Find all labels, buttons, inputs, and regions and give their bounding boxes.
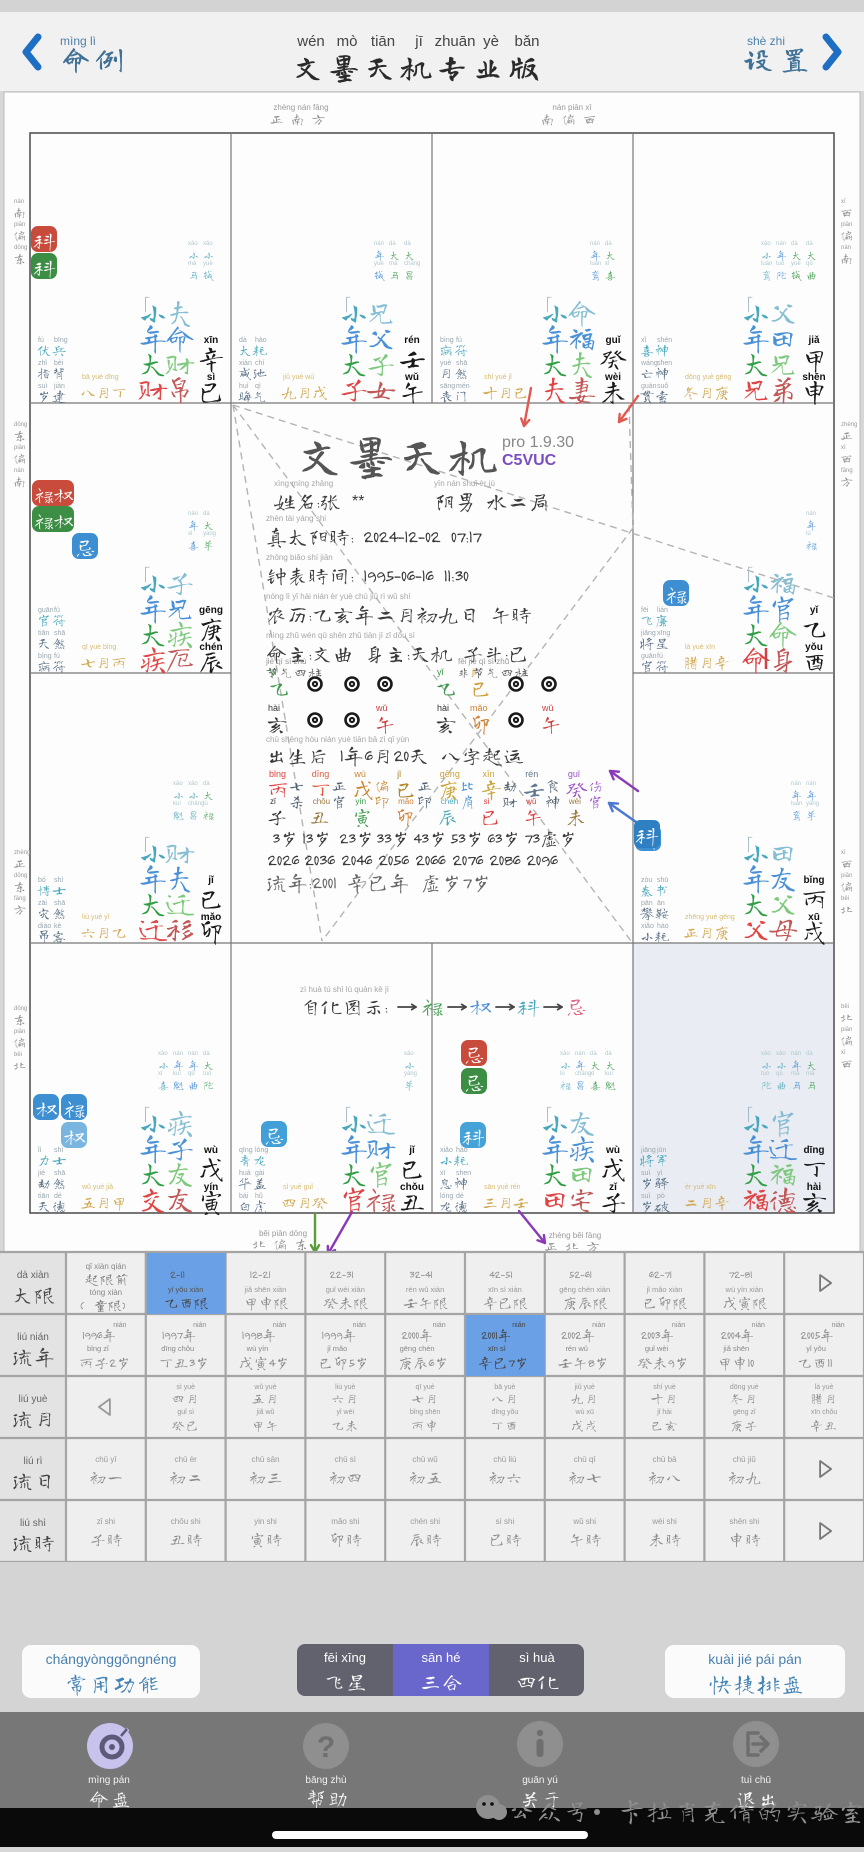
svg-text:shū: shū (657, 877, 668, 884)
svg-text:huì: huì (239, 383, 249, 390)
svg-text:yuè: yuè (440, 360, 451, 367)
svg-text:chū sì: chū sì (335, 1455, 356, 1464)
svg-text:shēn shi: shēn shi (729, 1517, 759, 1526)
svg-text:zì huà tú shì: zì huà tú shì lù quán kē jì (300, 985, 389, 994)
svg-text:dīng: dīng (803, 1145, 824, 1156)
svg-text:suì: suì (641, 1193, 650, 1200)
svg-text:qī yuè bǐng: qī yuè bǐng (82, 644, 116, 651)
svg-text:xǎo: xǎo (158, 1051, 168, 1057)
svg-text:sāng: sāng (440, 383, 455, 390)
svg-text:suì: suì (38, 383, 47, 390)
svg-text:tiān: tiān (371, 33, 395, 50)
svg-text:fú: fú (54, 607, 60, 614)
svg-text:kè: kè (54, 923, 62, 930)
svg-text:mǎ: mǎ (389, 261, 398, 267)
svg-text:sì yuè: sì yuè (176, 1384, 195, 1391)
svg-text:wǔ: wǔ (525, 797, 536, 806)
svg-text:dōng: dōng (14, 422, 27, 428)
svg-text:gēng: gēng (199, 605, 223, 616)
svg-text:nián: nián (512, 1322, 525, 1329)
svg-text:xīn: xīn (204, 335, 218, 346)
svg-text:shí yuè: shí yuè (653, 1384, 676, 1391)
svg-text:kuài jié pái pán: kuài jié pái pán (708, 1651, 801, 1667)
svg-text:yáng: yáng (404, 1071, 417, 1077)
svg-text:liú nián: liú nián (17, 1332, 49, 1343)
svg-text:**: ** (352, 493, 364, 510)
svg-text:mǎ: mǎ (791, 1071, 800, 1077)
svg-text:yì: yì (657, 1170, 663, 1177)
svg-text:chǒu: chǒu (313, 797, 330, 806)
svg-text:dōng: dōng (14, 873, 27, 879)
svg-text:hài: hài (437, 703, 449, 713)
svg-text:wù xū: wù xū (575, 1409, 594, 1416)
svg-text:nán: nán (188, 511, 198, 517)
svg-text:xǎo: xǎo (761, 241, 771, 247)
svg-text:tóng xiàn: tóng xiàn (90, 1288, 122, 1297)
svg-text:nán: nán (806, 511, 816, 517)
svg-text:bìng: bìng (38, 653, 52, 660)
svg-text:hài: hài (268, 703, 280, 713)
svg-text:lù: lù (203, 801, 208, 807)
svg-text:mǎo shi: mǎo shi (331, 1517, 359, 1526)
svg-text:xǐ: xǐ (641, 337, 647, 344)
svg-text:nóng lì yǐ hài nián: nóng lì yǐ hài nián èr yuè chū jiǔ rì wǔ… (266, 592, 411, 601)
svg-text:guǐ wèi: guǐ wèi (645, 1344, 669, 1353)
svg-text:bāng zhù: bāng zhù (305, 1775, 346, 1786)
svg-text:mén: mén (456, 383, 470, 390)
svg-text:tuì chū: tuì chū (741, 1775, 771, 1786)
svg-text:chū shēng hòu nián: chū shēng hòu nián yuè tiān bā zì qǐ yùn (266, 735, 409, 744)
svg-text:guǐ: guǐ (568, 769, 581, 779)
svg-text:mǎo: mǎo (398, 797, 414, 806)
svg-text:nián: nián (193, 1322, 206, 1329)
svg-text:yuè: yuè (203, 261, 213, 267)
svg-text:nián: nián (353, 1322, 366, 1329)
svg-text:lián: lián (657, 607, 668, 614)
svg-text:dé: dé (54, 1193, 62, 1200)
svg-text:dà: dà (806, 1051, 813, 1057)
svg-text:chū bā: chū bā (652, 1455, 677, 1464)
svg-text:chí: chí (255, 360, 264, 367)
svg-text:kuí: kuí (173, 1071, 181, 1077)
svg-text:wǔ: wǔ (404, 372, 419, 383)
svg-text:rén wǔ xiàn: rén wǔ xiàn (406, 1285, 444, 1294)
svg-text:mò: mò (337, 33, 358, 50)
svg-text:jiǔ yuè wù: jiǔ yuè wù (282, 374, 314, 381)
svg-text:nán: nán (374, 241, 384, 247)
svg-text:xiǎo: xiǎo (641, 923, 654, 930)
svg-text:zāi: zāi (38, 900, 47, 907)
svg-text:xǎo: xǎo (188, 241, 198, 247)
svg-text:fú: fú (38, 337, 44, 344)
svg-text:dōng yuè: dōng yuè (730, 1384, 759, 1391)
svg-text:qǔ: qǔ (188, 1071, 195, 1077)
svg-text:jǐ mǎo xiàn: jǐ mǎo xiàn (646, 1285, 683, 1294)
svg-text:chāng: chāng (188, 801, 204, 807)
svg-text:zhèng běi fāng: zhèng běi fāng (549, 1231, 602, 1240)
svg-text:wén: wén (296, 33, 325, 50)
svg-text:zhuān: zhuān (435, 33, 476, 50)
svg-text:yè: yè (483, 33, 499, 50)
svg-text:bǐng: bǐng (803, 875, 824, 886)
svg-text:piān: piān (841, 873, 852, 879)
svg-text:zhōng biǎo shí jiān: zhōng biǎo shí jiān (266, 553, 333, 562)
svg-text:xīn sì xiàn: xīn sì xiàn (488, 1285, 522, 1294)
svg-text:gài: gài (255, 1170, 265, 1177)
svg-text:jiǎ shēn: jiǎ shēn (722, 1344, 749, 1353)
svg-text:xìng míng zhāng: xìng míng zhāng (274, 479, 333, 488)
svg-text:tuó: tuó (776, 261, 785, 267)
svg-text:liú shì: liú shì (20, 1518, 46, 1529)
svg-text:xīn: xīn (483, 769, 495, 779)
svg-text:dà: dà (203, 511, 210, 517)
svg-text:dà: dà (203, 781, 210, 787)
svg-text:bǐng shēn: bǐng shēn (410, 1409, 440, 1416)
svg-text:zhèng: zhèng (14, 850, 30, 856)
svg-text:jiàn: jiàn (53, 383, 65, 390)
svg-text:yǐ: yǐ (810, 605, 820, 616)
svg-text:sì: sì (484, 797, 490, 806)
svg-text:dà: dà (806, 241, 813, 247)
svg-text:gēng zǐ: gēng zǐ (733, 1409, 756, 1416)
svg-text:jiǔ yuè: jiǔ yuè (574, 1384, 595, 1391)
svg-text:fēi xīng: fēi xīng (324, 1650, 366, 1665)
svg-text:jiǎ: jiǎ (807, 335, 820, 346)
svg-text:bā yuè dīng: bā yuè dīng (82, 374, 119, 381)
svg-text:guàn: guàn (641, 383, 657, 390)
svg-text:sān yuè rén: sān yuè rén (484, 1184, 521, 1191)
svg-text:wáng: wáng (640, 360, 658, 367)
svg-text:lù: lù (806, 531, 811, 537)
svg-text:luán: luán (761, 261, 772, 267)
svg-text:nián: nián (831, 1322, 844, 1329)
svg-text:chén shi: chén shi (410, 1517, 440, 1526)
svg-text:xǎo: xǎo (776, 1051, 786, 1057)
svg-text:zǐ shi: zǐ shi (97, 1517, 115, 1526)
svg-text:fēi jié qì sì zhù: fēi jié qì sì zhù (458, 657, 509, 666)
svg-text:dà: dà (605, 241, 612, 247)
svg-text:xiǎo: xiǎo (440, 1147, 453, 1154)
svg-text:dà: dà (605, 1051, 612, 1057)
svg-text:shí yuè jǐ: shí yuè jǐ (484, 374, 512, 381)
svg-text:zhēn tài yáng shi: zhēn tài yáng shi (266, 514, 326, 523)
svg-text:xǎo: xǎo (203, 241, 213, 247)
svg-text:luán: luán (590, 261, 601, 267)
svg-text:yáng: yáng (203, 531, 216, 537)
svg-text:guān yú: guān yú (522, 1775, 558, 1786)
svg-text:pān: pān (641, 900, 653, 907)
svg-text:xī: xī (841, 199, 846, 205)
svg-text:yǐ yǒu: yǐ yǒu (806, 1344, 826, 1353)
svg-text:rén: rén (404, 335, 420, 346)
svg-text:jiǎ wǔ: jiǎ wǔ (256, 1409, 275, 1416)
svg-text:chū qī: chū qī (574, 1455, 597, 1464)
svg-text:běi: běi (841, 896, 849, 902)
svg-text:nán: nán (575, 1051, 585, 1057)
svg-text:qǐ xiàn qián: qǐ xiàn qián (86, 1262, 126, 1271)
svg-text:hào: hào (255, 337, 267, 344)
svg-text:gēng chén xiàn: gēng chén xiàn (559, 1285, 610, 1294)
svg-text:guān: guān (38, 607, 54, 614)
svg-text:zhèng: zhèng (841, 422, 857, 428)
svg-text:xǎo: xǎo (761, 1051, 771, 1057)
svg-text:tuó: tuó (203, 1071, 212, 1077)
svg-text:nán: nán (14, 199, 24, 205)
svg-text:yuè: yuè (374, 261, 384, 267)
svg-text:yín: yín (355, 797, 366, 806)
svg-text:jī: jī (414, 33, 423, 50)
svg-text:nán: nán (791, 1051, 801, 1057)
svg-text:fú: fú (456, 337, 462, 344)
svg-text:bèi: bèi (54, 360, 64, 367)
svg-text:bǎn: bǎn (514, 33, 539, 50)
svg-text:mǎ: mǎ (806, 1071, 815, 1077)
svg-text:zhēng yuè gēng: zhēng yuè gēng (685, 914, 735, 921)
svg-text:sì: sì (207, 372, 216, 383)
svg-text:wù yín: wù yín (246, 1344, 269, 1353)
svg-text:jiāng: jiāng (640, 630, 656, 637)
svg-text:xián: xián (239, 360, 252, 367)
svg-text:nián: nián (672, 1322, 685, 1329)
svg-text:shen: shen (456, 1170, 471, 1177)
svg-text:zhèng nán fāng: zhèng nán fāng (273, 103, 328, 112)
svg-text:liù yuè yǐ: liù yuè yǐ (82, 914, 110, 921)
svg-text:nán piān xī: nán piān xī (552, 103, 592, 112)
svg-text:jǐ mǎo: jǐ mǎo (326, 1344, 347, 1353)
svg-text:chángyònggōngnéng: chángyònggōngnéng (46, 1651, 177, 1667)
svg-text:nán: nán (806, 781, 816, 787)
svg-text:jiǎ shēn xiàn: jiǎ shēn xiàn (244, 1285, 287, 1294)
svg-text:shā: shā (54, 900, 65, 907)
svg-text:?: ? (317, 1731, 335, 1764)
svg-text:mǎo: mǎo (470, 703, 488, 713)
svg-text:lóng: lóng (255, 1147, 268, 1154)
svg-text:shén: shén (657, 337, 672, 344)
svg-text:dīng yǒu: dīng yǒu (491, 1409, 518, 1416)
svg-text:běi: běi (14, 1052, 22, 1058)
svg-text:rén wǔ: rén wǔ (565, 1344, 588, 1353)
svg-text:hài: hài (807, 1182, 822, 1193)
svg-text:là yuè: là yuè (815, 1384, 834, 1391)
svg-text:pro 1.9.30: pro 1.9.30 (502, 434, 574, 451)
svg-text:chén: chén (199, 642, 222, 653)
svg-text:nián: nián (113, 1322, 126, 1329)
svg-text:lì: lì (38, 1147, 42, 1154)
svg-text:yuè: yuè (791, 261, 801, 267)
svg-text:chāng: chāng (404, 261, 420, 267)
svg-text:chén: chén (441, 797, 458, 806)
svg-text:huá: huá (239, 1170, 251, 1177)
svg-text:yǐ: yǐ (437, 667, 445, 677)
svg-text:qī yuè: qī yuè (416, 1384, 435, 1391)
svg-text:nán: nán (188, 1051, 198, 1057)
svg-text:hǔ: hǔ (255, 1193, 263, 1200)
svg-text:wù yín xiàn: wù yín xiàn (725, 1285, 764, 1294)
svg-text:chǒu shi: chǒu shi (171, 1517, 201, 1526)
svg-text:dīng: dīng (312, 769, 330, 779)
svg-text:bǐng zǐ: bǐng zǐ (87, 1344, 109, 1353)
svg-text:qǔ: qǔ (806, 261, 813, 267)
svg-text:shì: shì (54, 877, 63, 884)
svg-text:nán: nán (776, 241, 786, 247)
svg-text:mǎ: mǎ (188, 261, 197, 267)
svg-text:sì yuè guǐ: sì yuè guǐ (283, 1184, 313, 1191)
svg-text:nán: nán (173, 1051, 183, 1057)
svg-text:lóng: lóng (440, 1193, 453, 1200)
svg-text:wǔ: wǔ (541, 703, 554, 713)
svg-text:nán: nán (14, 468, 24, 474)
svg-text:sì shi: sì shi (496, 1517, 515, 1526)
svg-text:yáng: yáng (806, 801, 819, 807)
svg-text:dōng: dōng (14, 245, 27, 251)
svg-text:shì: shì (54, 1147, 63, 1154)
svg-text:dà xiàn: dà xiàn (17, 1270, 49, 1281)
svg-text:běi: běi (841, 1004, 849, 1010)
svg-text:là yuè xīn: là yuè xīn (685, 644, 715, 651)
svg-text:dōng yuè gēng: dōng yuè gēng (685, 374, 731, 381)
svg-text:liú yuè: liú yuè (19, 1394, 48, 1405)
svg-text:piān: piān (841, 1027, 852, 1033)
svg-text:qǔ: qǔ (776, 1071, 783, 1077)
svg-text:yin shi: yin shi (254, 1517, 277, 1526)
svg-text:chū liù: chū liù (493, 1455, 516, 1464)
svg-text:yǐ wèi: yǐ wèi (337, 1409, 355, 1416)
svg-text:fāng: fāng (14, 896, 26, 902)
svg-text:wèi: wèi (568, 797, 581, 806)
svg-text:piān: piān (841, 222, 852, 228)
svg-text:shen: shen (657, 360, 672, 367)
svg-text:fēi: fēi (641, 607, 649, 614)
svg-text:xǎo: xǎo (404, 1051, 414, 1057)
svg-text:liú rì: liú rì (24, 1456, 43, 1467)
svg-text:tiān: tiān (38, 630, 49, 637)
svg-text:xǎo: xǎo (173, 781, 183, 787)
svg-text:mǎo: mǎo (201, 912, 222, 923)
svg-text:xīn chǒu: xīn chǒu (811, 1409, 838, 1416)
svg-text:jǐ hài: jǐ hài (656, 1409, 672, 1416)
svg-text:lù: lù (560, 1071, 565, 1077)
svg-text:chū sān: chū sān (251, 1455, 279, 1464)
svg-text:piān: piān (14, 1029, 25, 1035)
svg-text:gēng: gēng (440, 769, 460, 779)
svg-text:wèi: wèi (604, 372, 621, 383)
svg-text:mìng lì: mìng lì (60, 34, 96, 48)
svg-text:wǔ: wǔ (375, 703, 388, 713)
svg-text:sān hé: sān hé (421, 1650, 460, 1665)
svg-text:wǔ yuè jiǎ: wǔ yuè jiǎ (81, 1184, 113, 1191)
svg-text:dà: dà (590, 1051, 597, 1057)
svg-text:èr yuè xīn: èr yuè xīn (685, 1184, 716, 1191)
svg-text:xǐ: xǐ (188, 531, 193, 537)
svg-text:bīng: bīng (54, 337, 68, 344)
svg-text:qīng: qīng (239, 1147, 253, 1154)
svg-text:yǐ: yǐ (270, 667, 278, 677)
svg-text:suǒ: suǒ (657, 383, 668, 390)
svg-text:nián: nián (273, 1322, 286, 1329)
svg-text:běi piān dōng: běi piān dōng (259, 1229, 307, 1238)
svg-text:wǔ shi: wǔ shi (572, 1517, 596, 1526)
svg-text:zhǐ: zhǐ (38, 360, 47, 367)
svg-text:wù: wù (353, 769, 366, 779)
svg-text:xǐ: xǐ (605, 261, 610, 267)
svg-text:chǒu: chǒu (400, 1182, 424, 1193)
svg-text:nán: nán (841, 245, 851, 251)
svg-text:zǐ: zǐ (609, 1182, 618, 1193)
svg-text:shā: shā (54, 1170, 65, 1177)
svg-text:zòu: zòu (641, 877, 652, 884)
svg-text:chū yī: chū yī (95, 1455, 117, 1464)
svg-text:bìng: bìng (440, 337, 454, 344)
svg-text:guǐ: guǐ (606, 335, 622, 346)
svg-text:shè zhi: shè zhi (747, 34, 785, 48)
svg-text:fāng: fāng (841, 468, 853, 474)
svg-text:ān: ān (657, 900, 665, 907)
svg-text:tuó: tuó (761, 1071, 770, 1077)
svg-text:chū jiǔ: chū jiǔ (733, 1455, 756, 1464)
svg-text:chāng: chāng (575, 1071, 591, 1077)
svg-text:xī: xī (841, 445, 846, 451)
svg-text:gēng chén: gēng chén (400, 1344, 435, 1353)
svg-text:luán: luán (791, 801, 802, 807)
svg-text:xǎo: xǎo (188, 781, 198, 787)
svg-text:wù: wù (203, 1145, 218, 1156)
svg-text:xīn sì: xīn sì (488, 1344, 506, 1353)
svg-text:guǐ wèi xiàn: guǐ wèi xiàn (326, 1285, 365, 1294)
svg-text:dà: dà (203, 1051, 210, 1057)
svg-text:yīn nán shuǐ èr jú: yīn nán shuǐ èr jú (434, 479, 495, 488)
svg-text:kuí: kuí (173, 801, 181, 807)
svg-text:diào: diào (38, 923, 51, 930)
svg-text:nán: nán (590, 241, 600, 247)
svg-text:dōng: dōng (14, 1006, 27, 1012)
svg-text:xī: xī (440, 1170, 446, 1177)
svg-text:shā: shā (54, 630, 65, 637)
svg-text:wù: wù (605, 1145, 620, 1156)
svg-text:xī: xī (841, 1050, 846, 1056)
svg-text:dé: dé (456, 1193, 464, 1200)
svg-text:nán: nán (791, 781, 801, 787)
svg-text:dà: dà (791, 241, 798, 247)
svg-text:kuí: kuí (605, 1071, 613, 1077)
svg-text:bǐng: bǐng (269, 769, 286, 779)
svg-text:bái: bái (239, 1193, 249, 1200)
svg-text:mìng zhǔ wén qū shēn zhǔ: mìng zhǔ wén qū shēn zhǔ tiān jī zǐ dǒu … (266, 631, 415, 640)
svg-text:hào: hào (456, 1147, 468, 1154)
svg-text:C5VUC: C5VUC (502, 452, 557, 469)
svg-text:jié: jié (37, 1170, 45, 1177)
svg-text:suì: suì (641, 1170, 650, 1177)
svg-text:dīng chǒu: dīng chǒu (161, 1344, 194, 1353)
svg-text:dà: dà (389, 241, 396, 247)
svg-text:nián: nián (592, 1322, 605, 1329)
svg-text:mìng pán: mìng pán (88, 1775, 130, 1786)
svg-text:shā: shā (456, 360, 467, 367)
svg-text:yǒu: yǒu (805, 642, 823, 653)
svg-text:tiān: tiān (38, 1193, 49, 1200)
svg-text:dà: dà (404, 241, 411, 247)
svg-text:guǐ sì: guǐ sì (177, 1409, 194, 1416)
svg-text:chū èr: chū èr (175, 1455, 198, 1464)
svg-text:wèi shi: wèi shi (651, 1517, 677, 1526)
svg-text:jié qì sì zhù: jié qì sì zhù (265, 657, 306, 666)
svg-text:hào: hào (657, 923, 669, 930)
svg-text:yǐ yǒu xiàn: yǐ yǒu xiàn (168, 1285, 203, 1294)
svg-text:piān: piān (14, 222, 25, 228)
svg-text:rén: rén (525, 769, 538, 779)
svg-text:xīng: xīng (657, 630, 670, 637)
svg-text:pò: pò (657, 1193, 665, 1200)
svg-text:bó: bó (38, 877, 46, 884)
